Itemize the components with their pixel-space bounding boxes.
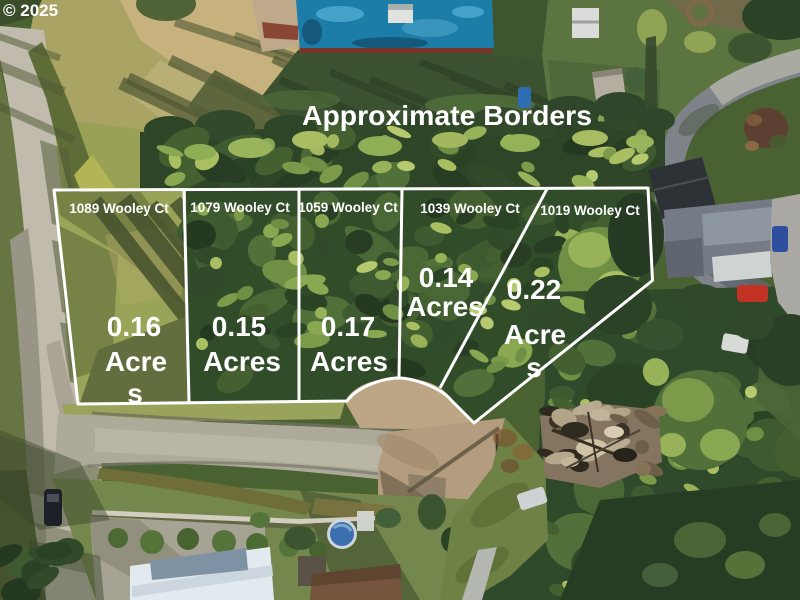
svg-text:© 2025: © 2025 [3,1,58,20]
svg-text:Acre: Acre [504,319,566,350]
svg-text:1059 Wooley Ct: 1059 Wooley Ct [298,200,398,215]
svg-text:Approximate Borders: Approximate Borders [302,100,592,131]
svg-text:1079 Wooley Ct: 1079 Wooley Ct [190,200,290,215]
svg-text:0.15: 0.15 [212,311,267,342]
svg-text:Acres: Acres [310,346,388,377]
svg-text:Acres: Acres [406,291,484,322]
svg-text:Acres: Acres [203,346,281,377]
svg-text:0.22: 0.22 [507,274,562,305]
svg-text:0.17: 0.17 [321,311,376,342]
svg-text:1089 Wooley Ct: 1089 Wooley Ct [69,201,169,216]
svg-text:1019 Wooley Ct: 1019 Wooley Ct [540,203,640,218]
svg-text:1039 Wooley Ct: 1039 Wooley Ct [420,201,520,216]
svg-text:0.16: 0.16 [107,311,162,342]
svg-text:0.14: 0.14 [419,262,474,293]
svg-text:Acre: Acre [105,346,167,377]
svg-text:s: s [127,378,143,409]
svg-text:s: s [526,352,542,383]
